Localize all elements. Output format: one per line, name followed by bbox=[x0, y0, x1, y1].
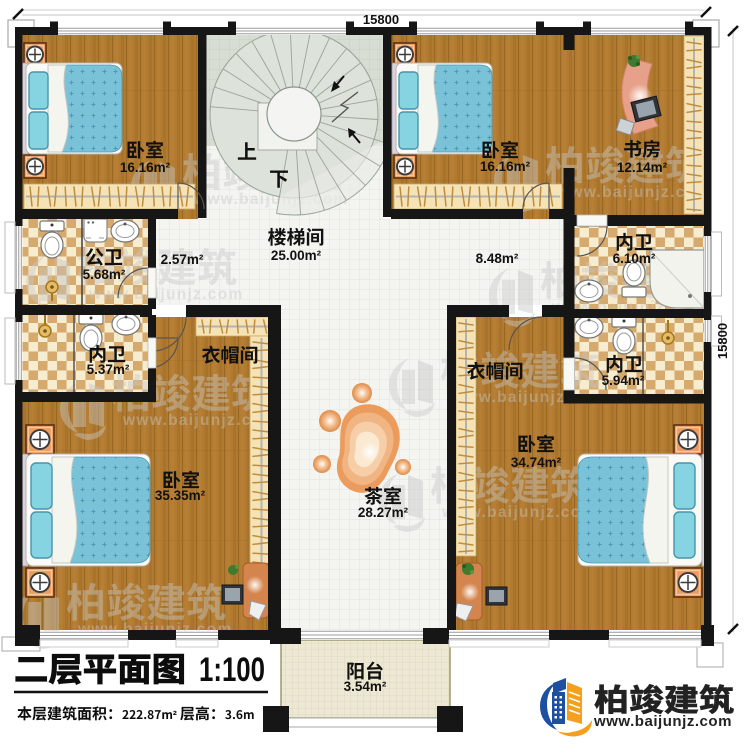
svg-text:16.16m²: 16.16m² bbox=[480, 159, 531, 174]
svg-text:15800: 15800 bbox=[715, 323, 730, 359]
svg-text:衣帽间: 衣帽间 bbox=[201, 341, 258, 368]
svg-text:上: 上 bbox=[237, 136, 257, 165]
svg-text:6.10m²: 6.10m² bbox=[613, 251, 656, 266]
svg-text:1:100: 1:100 bbox=[199, 651, 265, 689]
svg-text:卧室: 卧室 bbox=[126, 136, 164, 163]
svg-text:5.37m²: 5.37m² bbox=[87, 362, 130, 377]
svg-text:35.35m²: 35.35m² bbox=[155, 488, 206, 503]
svg-text:28.27m²: 28.27m² bbox=[358, 505, 409, 520]
svg-text:2.57m²: 2.57m² bbox=[161, 252, 204, 267]
svg-text:卧室: 卧室 bbox=[517, 430, 555, 457]
svg-text:8.48m²: 8.48m² bbox=[476, 251, 519, 266]
svg-text:书房: 书房 bbox=[623, 135, 661, 162]
svg-text:5.68m²: 5.68m² bbox=[83, 267, 126, 282]
svg-text:楼梯间: 楼梯间 bbox=[267, 223, 324, 250]
svg-text:公卫: 公卫 bbox=[85, 243, 123, 270]
svg-text:www.baijunjz.com: www.baijunjz.com bbox=[593, 714, 732, 730]
svg-text:www.baijunjz.com: www.baijunjz.com bbox=[88, 286, 244, 303]
svg-text:12.14m²: 12.14m² bbox=[617, 160, 668, 175]
svg-text:下: 下 bbox=[269, 163, 289, 192]
svg-text:25.00m²: 25.00m² bbox=[271, 248, 322, 263]
svg-text:本层建筑面积：222.87m²层高：3.6m: 本层建筑面积：222.87m²层高：3.6m bbox=[17, 703, 255, 724]
svg-text:衣帽间: 衣帽间 bbox=[466, 357, 523, 384]
svg-text:34.74m²: 34.74m² bbox=[511, 455, 562, 470]
svg-text:15800: 15800 bbox=[363, 12, 399, 27]
svg-text:二层平面图: 二层平面图 bbox=[14, 643, 186, 691]
svg-text:5.94m²: 5.94m² bbox=[602, 373, 645, 388]
svg-text:3.54m²: 3.54m² bbox=[344, 679, 387, 694]
svg-text:16.16m²: 16.16m² bbox=[120, 160, 171, 175]
